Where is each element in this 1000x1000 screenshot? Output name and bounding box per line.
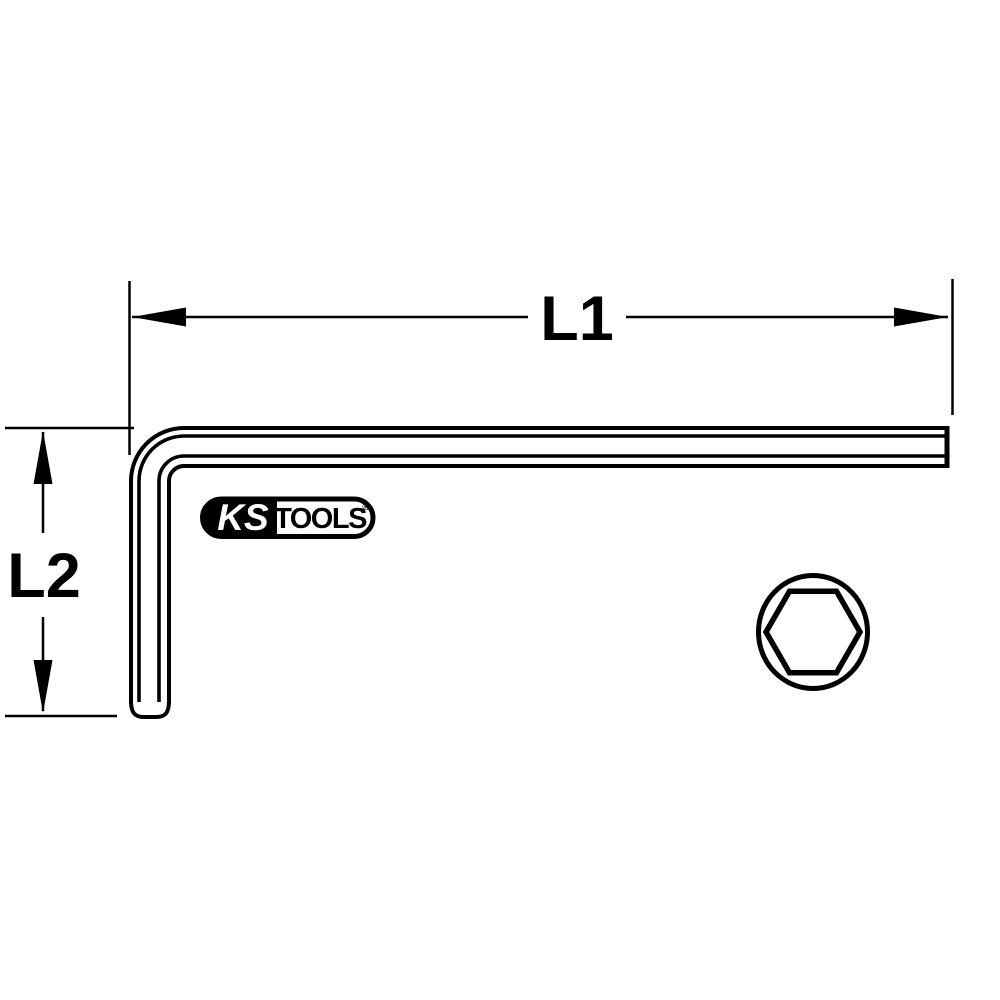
hex-key-arm-tip-cap (131, 701, 169, 717)
cross-section-hexagon-icon (766, 591, 860, 672)
ks-tools-logo: KS TOOLS ® (202, 497, 373, 538)
logo-registered-mark: ® (362, 502, 370, 513)
l2-label: L2 (7, 541, 81, 611)
hex-key-contour-line-1 (139, 436, 947, 702)
hex-cross-section (759, 576, 868, 689)
logo-ks-text: KS (217, 497, 269, 538)
l1-arrowhead-right-icon (894, 308, 948, 327)
hex-key-technical-drawing: L1 L2 KS TOOLS ® (0, 0, 1000, 1000)
l2-arrowhead-up-icon (34, 431, 53, 484)
drawing-canvas: L1 L2 KS TOOLS ® (0, 0, 1000, 1000)
logo-tools-text: TOOLS (274, 503, 367, 535)
dimension-l2: L2 (5, 428, 134, 716)
l2-arrowhead-down-icon (34, 660, 53, 713)
l1-arrowhead-left-icon (132, 308, 186, 327)
l1-label: L1 (540, 284, 614, 354)
hex-key-inner-edge (169, 466, 947, 704)
hex-key-outer-edge (131, 428, 947, 704)
